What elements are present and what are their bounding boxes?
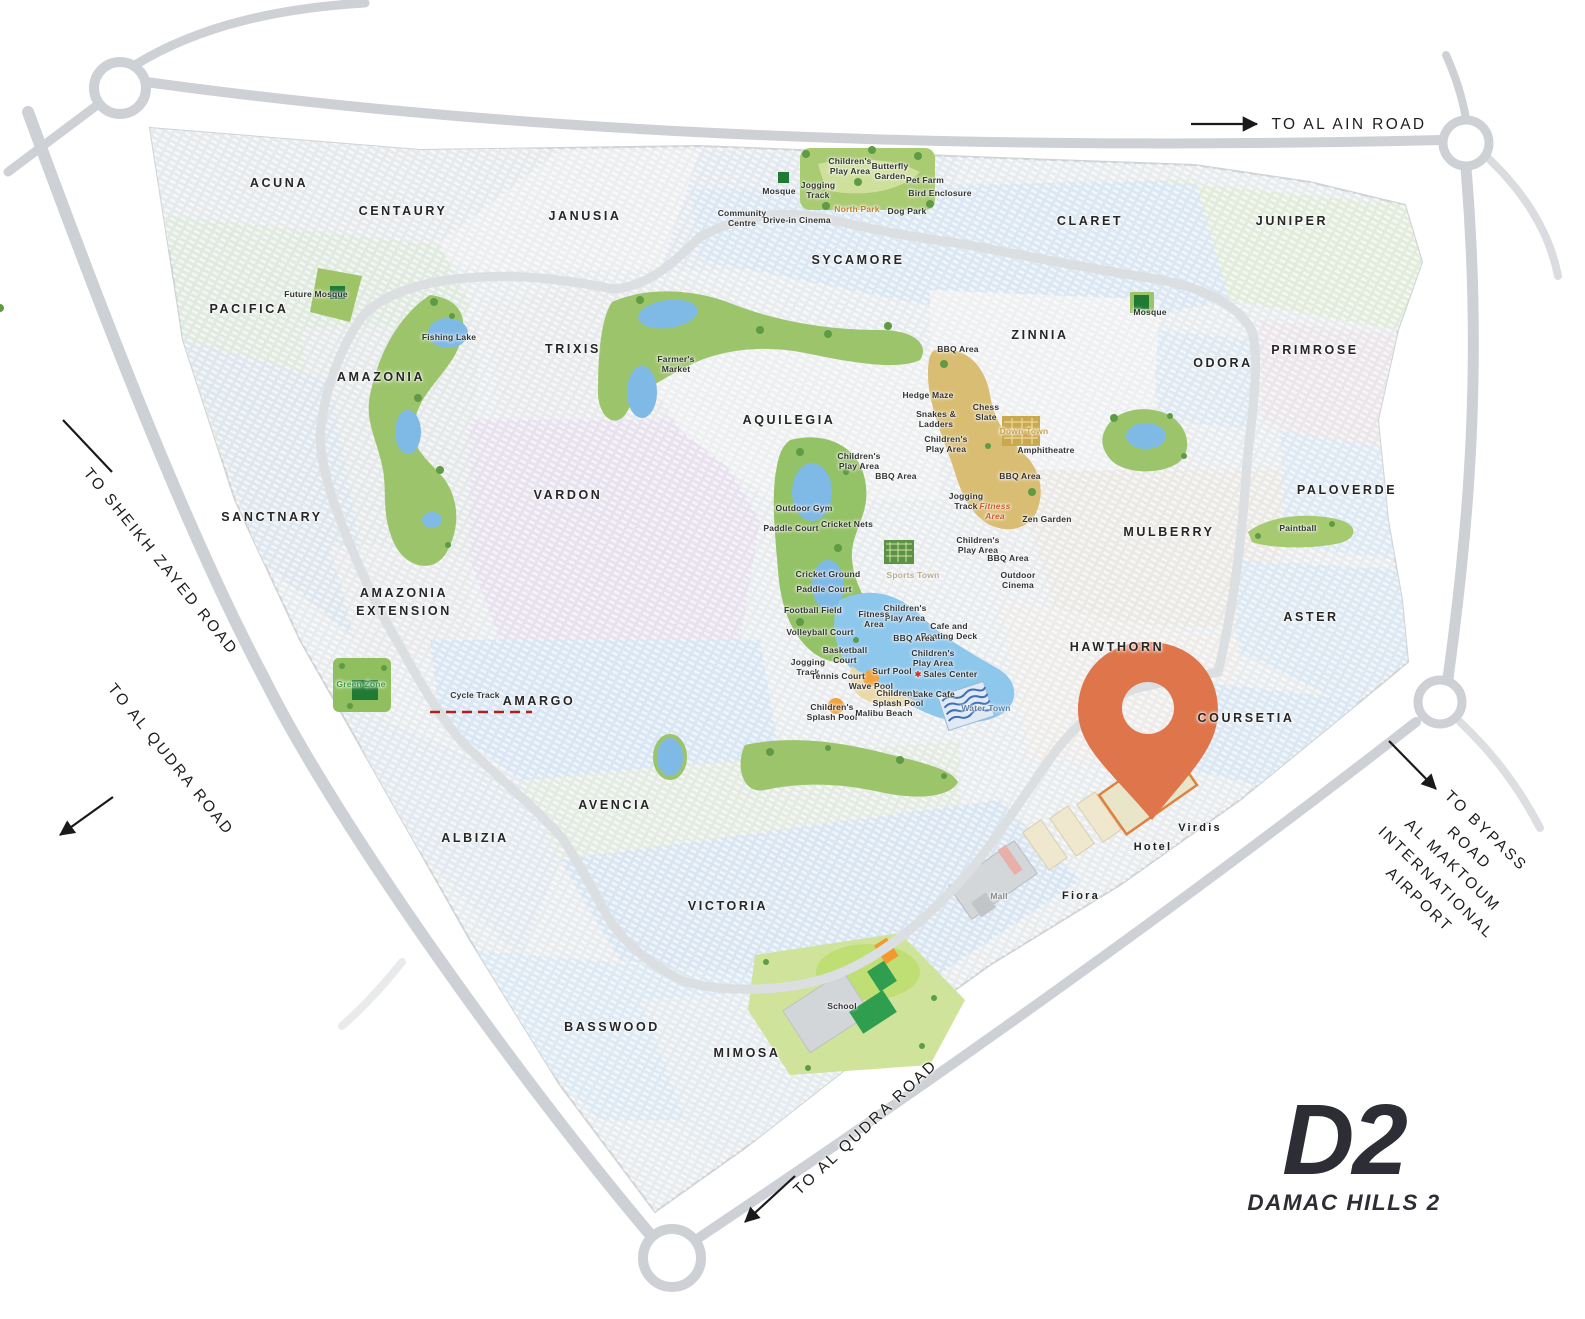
direction-arrow-4 — [63, 420, 112, 472]
mosque-icon-zinnia — [1130, 292, 1154, 313]
masterplan-map: ACUNACENTAURYJANUSIAPACIFICAAMAZONIATRIX… — [0, 0, 1585, 1319]
brand-logo: D2 DAMAC HILLS 2 — [1228, 1096, 1460, 1216]
brand-logo-sub: DAMAC HILLS 2 — [1228, 1190, 1460, 1216]
future-mosque-icon — [330, 286, 345, 299]
direction-arrow-3 — [60, 797, 113, 835]
brand-logo-main: D2 — [1228, 1096, 1460, 1184]
direction-arrow-1 — [1389, 741, 1436, 789]
mosque-icon-top — [778, 172, 789, 183]
